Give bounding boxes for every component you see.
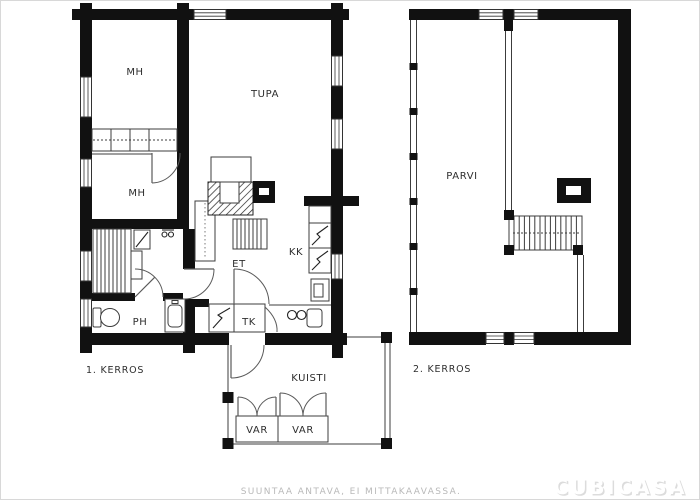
disclaimer-text: SUUNTAA ANTAVA, EI MITTAKAAVASSA. [241, 487, 462, 497]
porch-post [381, 438, 392, 449]
window [486, 333, 504, 344]
room-label-parvi: PARVI [446, 171, 477, 182]
bedroom-door [92, 151, 180, 183]
water-heater-icon [165, 299, 185, 332]
vestibule-door [234, 269, 269, 304]
entrance-door [231, 345, 264, 378]
freezer-icon [309, 248, 331, 273]
cubicasa-watermark: CUBICASA CUBICASA [553, 475, 688, 500]
window [194, 10, 226, 20]
porch-post [223, 438, 234, 449]
floor1-label: 1. KERROS [86, 365, 144, 376]
floor-plan-page: MH TUPA MH ET KK PH TK KUISTI VAR VAR PA… [0, 0, 700, 500]
sink-icon [307, 309, 322, 327]
window [332, 119, 343, 149]
room-label-et: ET [232, 259, 246, 270]
window [479, 10, 503, 20]
window [514, 333, 534, 344]
room-label-var2: VAR [292, 425, 314, 436]
loft-railing-left [410, 20, 418, 332]
sauna-heater-icon [134, 230, 150, 249]
room-label-kk: KK [289, 247, 303, 258]
stairs-floor2 [504, 210, 583, 255]
utility-closet [209, 304, 234, 332]
loft-railing-center [506, 31, 512, 212]
chimney-icon [557, 178, 591, 203]
room-label-var1: VAR [246, 425, 268, 436]
watermark-text: CUBICASA [553, 475, 687, 499]
bathroom-door [184, 269, 214, 299]
window [81, 251, 92, 281]
toilet-icon [93, 308, 120, 327]
floor2-label: 2. KERROS [413, 364, 471, 375]
window [514, 10, 538, 20]
railing-post [504, 210, 514, 220]
floor2-walls [409, 9, 631, 345]
porch-post [223, 392, 234, 403]
window [81, 77, 92, 117]
room-label-mh2: MH [128, 188, 145, 199]
window [81, 299, 92, 327]
floor-2 [409, 9, 631, 345]
room-label-mh1: MH [126, 67, 143, 78]
loft-railing-stair [578, 255, 584, 332]
room-label-tk: TK [241, 317, 256, 328]
fridge-icon [309, 223, 331, 248]
fireplace [208, 157, 275, 215]
floor-1 [72, 3, 359, 378]
window [81, 159, 92, 187]
room-label-kuisti: KUISTI [291, 373, 327, 384]
cabinet [309, 206, 331, 223]
stove-icon [288, 311, 307, 320]
window [332, 56, 343, 86]
closet-row [92, 129, 177, 151]
closet-door [265, 307, 277, 332]
porch-post [381, 332, 392, 343]
room-label-tupa: TUPA [250, 89, 279, 100]
room-label-ph: PH [133, 317, 148, 328]
railing-post [504, 245, 514, 255]
shower-icon [162, 230, 174, 237]
floor-plan-canvas: MH TUPA MH ET KK PH TK KUISTI VAR VAR PA… [1, 1, 700, 500]
window [332, 254, 343, 279]
kitchenette [269, 206, 331, 327]
floor2-windows [479, 10, 538, 344]
cabinet [311, 279, 329, 301]
stairs-floor1 [233, 219, 267, 249]
railing-post [573, 245, 583, 255]
